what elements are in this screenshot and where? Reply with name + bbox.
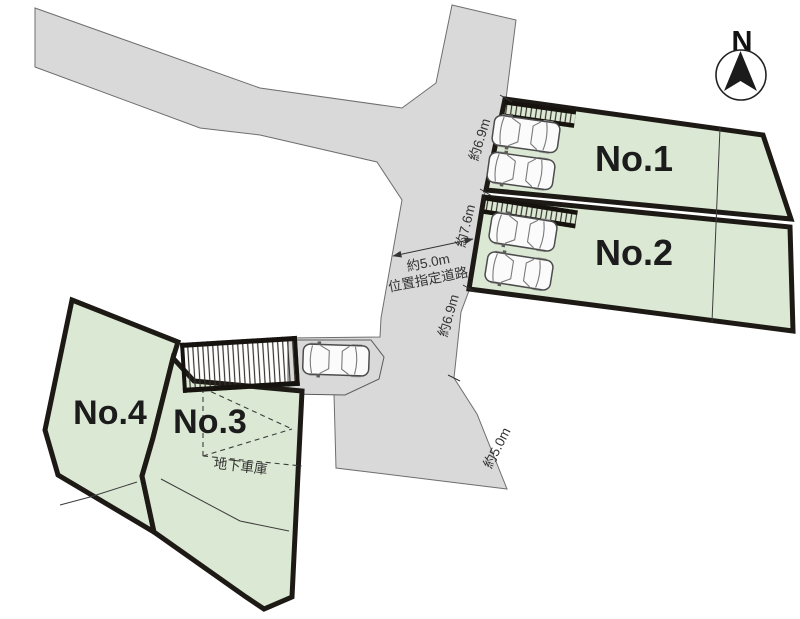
lot-no2-label: No.2 [595,232,673,273]
site-plan-drawing: No.1 No.2 No.3 No.4 約6.9m 約7.6m 約6.9m 約5… [0,0,800,619]
north-label: N [732,26,753,58]
garage-ramp-stairs-no3 [180,336,300,393]
lot-no3 [142,358,302,609]
lot-no1-label: No.1 [595,138,673,179]
north-compass: N [716,26,766,100]
car-street [302,341,369,379]
site-plan: No.1 No.2 No.3 No.4 約6.9m 約7.6m 約6.9m 約5… [0,0,800,619]
lot-no4-label: No.4 [73,394,147,432]
lot-no3-label: No.3 [173,403,247,441]
